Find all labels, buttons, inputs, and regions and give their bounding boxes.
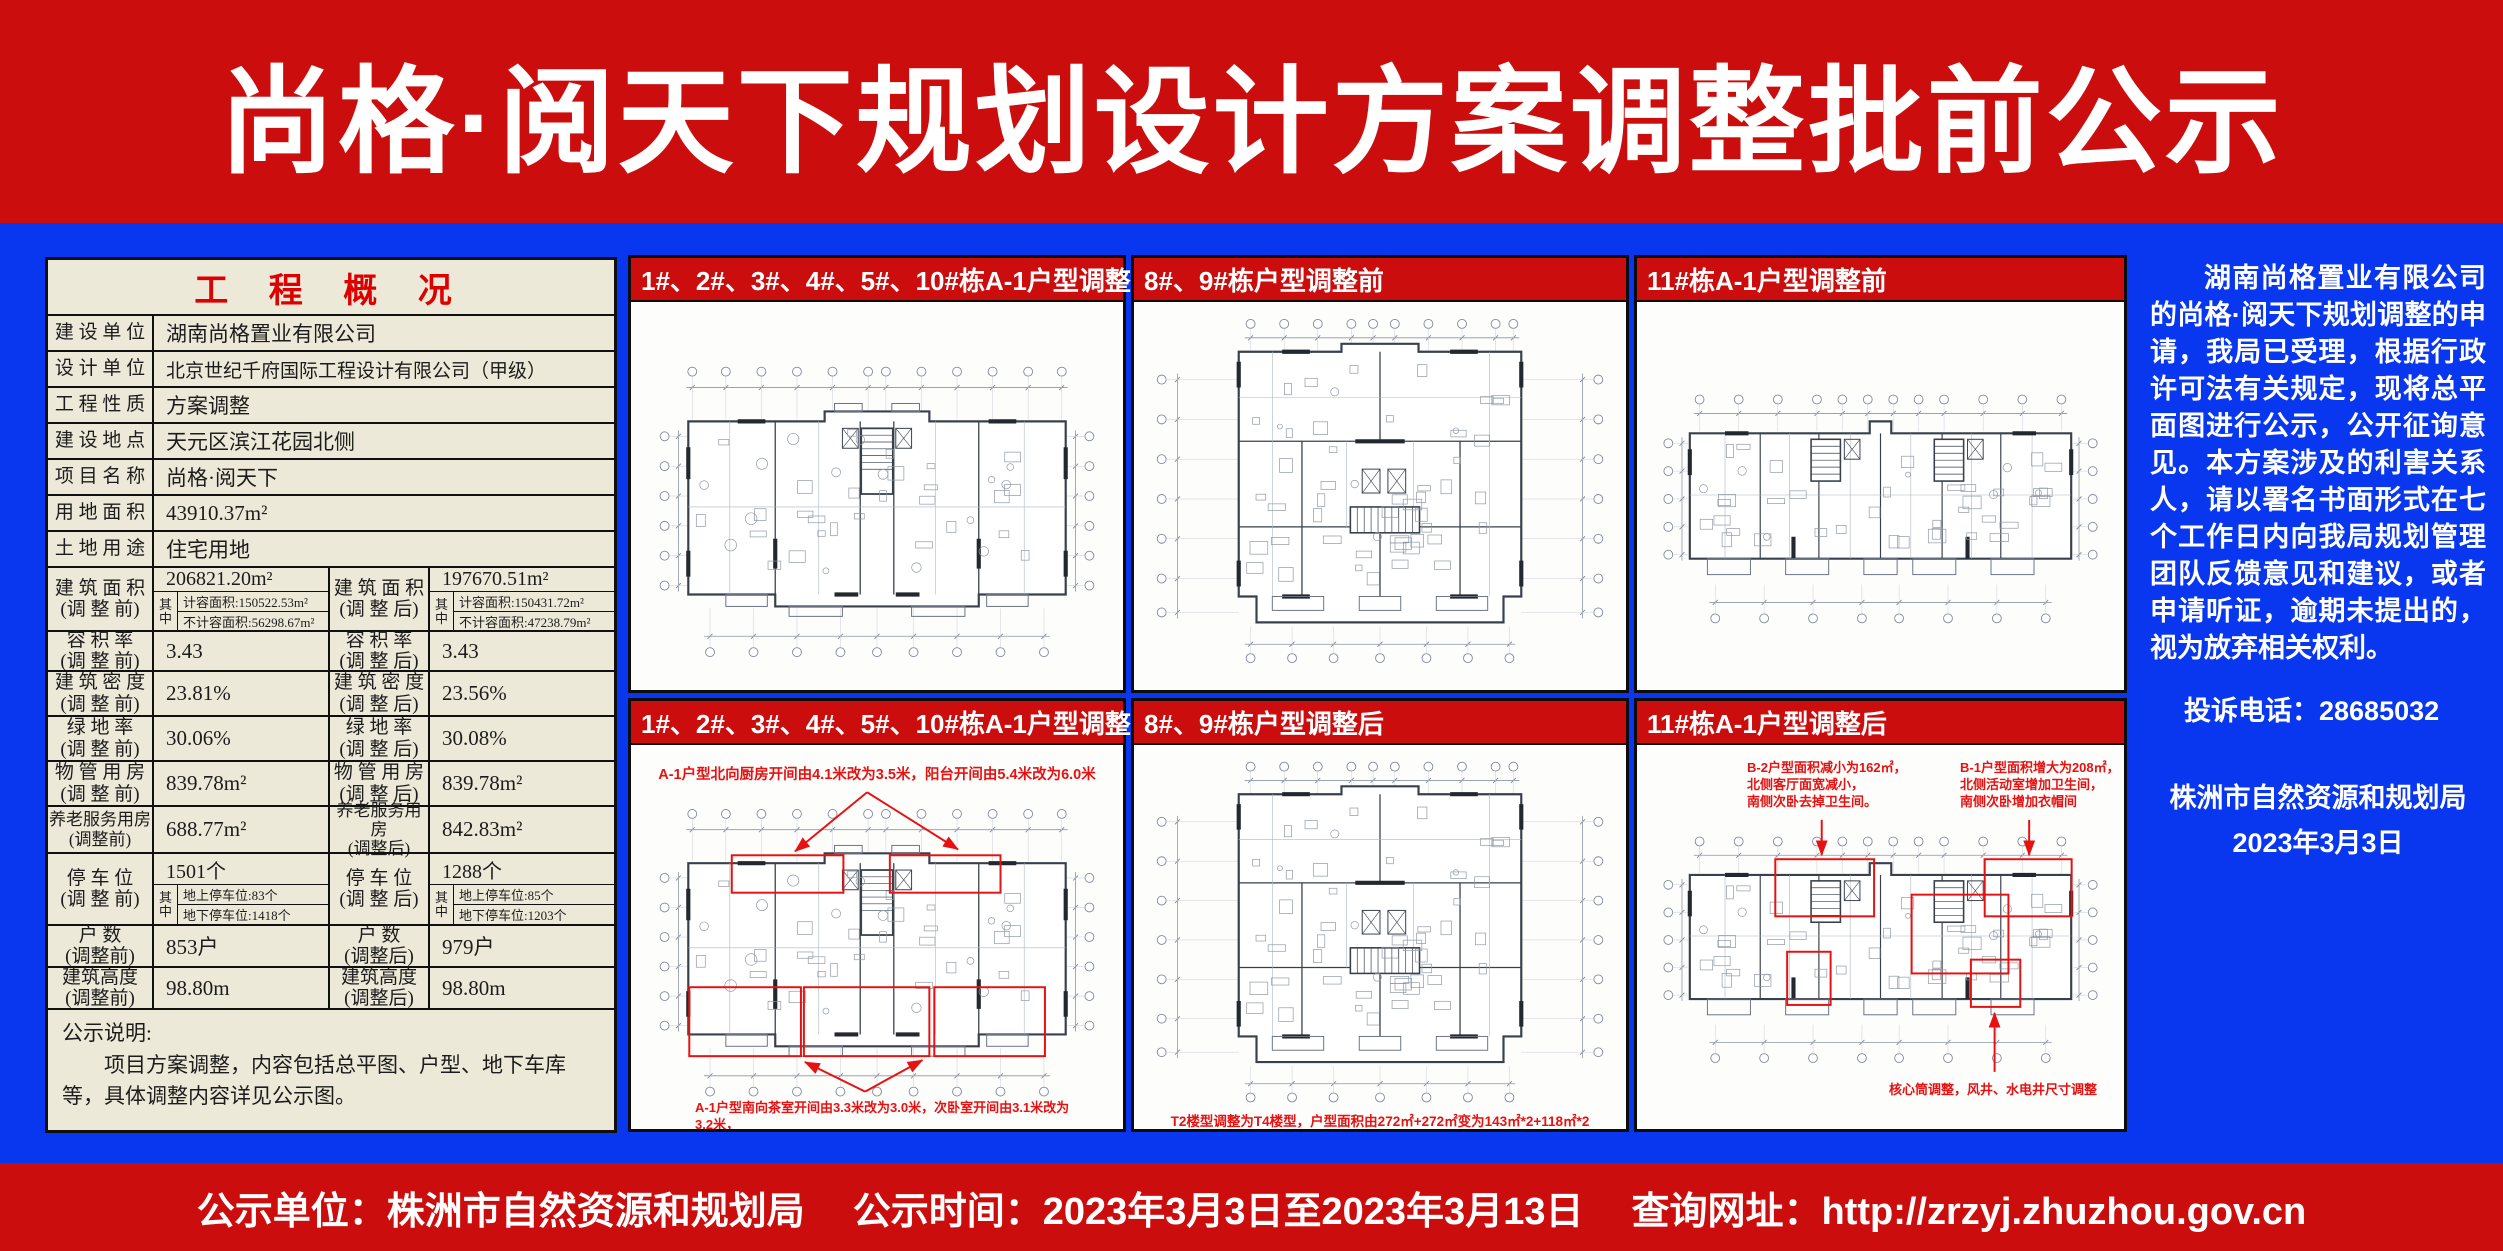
panel-body: T2楼型调整为T4楼型，户型面积由272㎡+272㎡变为143㎡*2+118㎡*… — [1134, 745, 1626, 1129]
area-before-sub1: 计容面积:150522.53m² — [178, 592, 328, 611]
row-label: 建 筑 面 积 (调 整 前) — [48, 568, 154, 630]
panel-body: B-2户型面积减小为162㎡， 北侧客厅面宽减小， 南侧次卧去掉卫生间。 B-1… — [1637, 745, 2124, 1129]
parking-before-cell: 1501个 其 中 地上停车位:83个 地下停车位:1418个 — [154, 854, 330, 924]
row-label: 建 筑 密 度 (调 整 前) — [48, 672, 154, 715]
row-value: 北京世纪千府国际工程设计有限公司（甲级） — [154, 352, 614, 386]
parking-after-sub2: 地下停车位:1203个 — [454, 904, 614, 924]
panel-header: 11#栋A-1户型调整后 — [1637, 701, 2124, 745]
table-row: 建 设 单 位 湖南尚格置业有限公司 — [48, 314, 614, 350]
row-label: 建筑高度 (调整前) — [48, 968, 154, 1008]
panel-title: 8#、9#栋户型调整后 — [1144, 704, 1384, 741]
plan-panel-b11-before: 11#栋A-1户型调整前 — [1634, 255, 2127, 693]
row-label: 建 筑 密 度 (调 整 后) — [330, 672, 430, 715]
authority-name: 株洲市自然资源和规划局 — [2150, 780, 2486, 817]
qizhong-label: 其 中 — [430, 592, 454, 631]
table-row-parking: 停 车 位 (调 整 前) 1501个 其 中 地上停车位:83个 地下停车位:… — [48, 852, 614, 924]
area-after-value: 197670.51m² — [430, 568, 614, 592]
table-row: 工 程 性 质 方案调整 — [48, 386, 614, 422]
row-label: 物 管 用 房 (调 整 前) — [48, 762, 154, 805]
annotation-note-bottom: A-1户型南向茶室开间由3.3米改为3.0米，次卧室开间由3.1米改为3.2米，… — [695, 1099, 1075, 1129]
row-value: 3.43 — [154, 632, 330, 670]
table-row: 土 地 用 途 住宅用地 — [48, 530, 614, 566]
row-label: 停 车 位 (调 整 前) — [48, 854, 154, 924]
annotation-note-bottom: 核心筒调整，风井、水电井尺寸调整 — [1889, 1081, 2097, 1098]
plan-panel-a1-after: 1#、2#、3#、4#、5#、10#栋A-1户型调整后 — [628, 698, 1126, 1132]
floor-plan — [1637, 302, 2124, 690]
floor-plan — [1134, 302, 1626, 690]
plan-panel-t2-before: 8#、9#栋户型调整前 — [1131, 255, 1629, 693]
row-value: 839.78m² — [154, 762, 330, 805]
panel-body: A-1户型北向厨房开间由4.1米改为3.5米，阳台开间由5.4米改为6.0米 A… — [631, 745, 1123, 1129]
annotation-note-top: A-1户型北向厨房开间由4.1米改为3.5米，阳台开间由5.4米改为6.0米 — [631, 767, 1123, 784]
table-row-plot-ratio: 容 积 率 (调 整 前) 3.43 容 积 率 (调 整 后) 3.43 — [48, 630, 614, 670]
floor-plan — [631, 745, 1123, 1129]
table-row: 设 计 单 位 北京世纪千府国际工程设计有限公司（甲级） — [48, 350, 614, 386]
row-label: 容 积 率 (调 整 前) — [48, 632, 154, 670]
row-value: 98.80m — [430, 968, 614, 1008]
row-label: 建 筑 面 积 (调 整 后) — [330, 568, 430, 630]
page-title: 尚格·阅天下规划设计方案调整批前公示 — [219, 28, 2284, 196]
row-label: 项 目 名 称 — [48, 460, 154, 494]
row-value: 湖南尚格置业有限公司 — [154, 316, 614, 350]
table-row: 建 设 地 点 天元区滨江花园北侧 — [48, 422, 614, 458]
table-row-elderly-room: 养老服务用房 (调整前) 688.77m² 养老服务用房 (调整后) 842.8… — [48, 805, 614, 852]
panel-body — [631, 302, 1123, 690]
panel-title: 1#、2#、3#、4#、5#、10#栋A-1户型调整后 — [641, 704, 1157, 741]
panel-title: 11#栋A-1户型调整后 — [1647, 704, 1887, 741]
row-value: 方案调整 — [154, 388, 614, 422]
table-title: 工 程 概 况 — [48, 260, 614, 314]
header-banner: 尚格·阅天下规划设计方案调整批前公示 — [0, 0, 2503, 223]
row-label: 户 数 (调整前) — [48, 926, 154, 966]
row-value: 43910.37m² — [154, 496, 614, 530]
row-value: 98.80m — [154, 968, 330, 1008]
row-label: 用 地 面 积 — [48, 496, 154, 530]
row-label: 容 积 率 (调 整 后) — [330, 632, 430, 670]
row-label: 建筑高度 (调整后) — [330, 968, 430, 1008]
complaint-phone: 投诉电话：28685032 — [2150, 693, 2486, 730]
footer-time: 公示时间：2023年3月3日至2023年3月13日 — [853, 1180, 1584, 1235]
row-label: 养老服务用房 (调整后) — [330, 807, 430, 852]
panel-header: 1#、2#、3#、4#、5#、10#栋A-1户型调整前 — [631, 258, 1123, 302]
row-value: 842.83m² — [430, 807, 614, 852]
panel-title: 8#、9#栋户型调整前 — [1144, 261, 1384, 298]
table-row: 用 地 面 积 43910.37m² — [48, 494, 614, 530]
row-label: 设 计 单 位 — [48, 352, 154, 386]
panel-body — [1134, 302, 1626, 690]
row-label: 户 数 (调整后) — [330, 926, 430, 966]
row-value: 853户 — [154, 926, 330, 966]
row-label: 土 地 用 途 — [48, 532, 154, 566]
qizhong-label: 其 中 — [154, 885, 178, 924]
project-overview-table: 工 程 概 况 建 设 单 位 湖南尚格置业有限公司 设 计 单 位 北京世纪千… — [45, 257, 617, 1133]
row-value: 天元区滨江花园北侧 — [154, 424, 614, 458]
area-after-cell: 197670.51m² 其 中 计容面积:150431.72m² 不计容面积:4… — [430, 568, 614, 630]
annotation-note-right: B-1户型面积增大为208㎡， 北侧活动室增加卫生间， 南侧次卧增加衣帽间 — [1960, 759, 2124, 810]
row-label: 绿 地 率 (调 整 后) — [330, 717, 430, 760]
footer-banner: 公示单位：株洲市自然资源和规划局 公示时间：2023年3月3日至2023年3月1… — [0, 1163, 2503, 1251]
row-value: 23.81% — [154, 672, 330, 715]
row-label: 绿 地 率 (调 整 前) — [48, 717, 154, 760]
note-title: 公示说明: — [62, 1018, 600, 1050]
notice-date: 2023年3月3日 — [2150, 825, 2486, 862]
row-value: 尚格·阅天下 — [154, 460, 614, 494]
parking-before-value: 1501个 — [154, 854, 328, 885]
notice-column: 湖南尚格置业有限公司的尚格·阅天下规划调整的申请，我局已受理，根据行政许可法有关… — [2150, 260, 2486, 862]
area-before-sub2: 不计容面积:56298.67m² — [178, 611, 328, 631]
panel-title: 11#栋A-1户型调整前 — [1647, 261, 1887, 298]
row-value: 住宅用地 — [154, 532, 614, 566]
qizhong-label: 其 中 — [430, 885, 454, 924]
footer-unit: 公示单位：株洲市自然资源和规划局 — [197, 1180, 805, 1235]
table-row-households: 户 数 (调整前) 853户 户 数 (调整后) 979户 — [48, 924, 614, 966]
note-body: 项目方案调整，内容包括总平图、户型、地下车库等，具体调整内容详见公示图。 — [62, 1050, 600, 1113]
table-row-height: 建筑高度 (调整前) 98.80m 建筑高度 (调整后) 98.80m — [48, 966, 614, 1008]
panel-header: 1#、2#、3#、4#、5#、10#栋A-1户型调整后 — [631, 701, 1123, 745]
annotation-note-bottom: T2楼型调整为T4楼型，户型面积由272㎡+272㎡变为143㎡*2+118㎡*… — [1134, 1113, 1626, 1129]
notice-paragraph: 湖南尚格置业有限公司的尚格·阅天下规划调整的申请，我局已受理，根据行政许可法有关… — [2150, 260, 2486, 667]
plan-panel-t2-after: 8#、9#栋户型调整后 T2楼型调整为T4楼型，户型面积由272㎡+272㎡变为… — [1131, 698, 1629, 1132]
parking-after-value: 1288个 — [430, 854, 614, 885]
row-value: 30.08% — [430, 717, 614, 760]
parking-after-sub1: 地上停车位:85个 — [454, 885, 614, 904]
panel-body — [1637, 302, 2124, 690]
table-note: 公示说明: 项目方案调整，内容包括总平图、户型、地下车库等，具体调整内容详见公示… — [48, 1008, 614, 1130]
row-label: 工 程 性 质 — [48, 388, 154, 422]
row-value: 839.78m² — [430, 762, 614, 805]
panel-title: 1#、2#、3#、4#、5#、10#栋A-1户型调整前 — [641, 261, 1157, 298]
area-after-sub1: 计容面积:150431.72m² — [454, 592, 614, 611]
area-after-sub2: 不计容面积:47238.79m² — [454, 611, 614, 631]
row-value: 30.06% — [154, 717, 330, 760]
table-row-green-ratio: 绿 地 率 (调 整 前) 30.06% 绿 地 率 (调 整 后) 30.08… — [48, 715, 614, 760]
table-row-density: 建 筑 密 度 (调 整 前) 23.81% 建 筑 密 度 (调 整 后) 2… — [48, 670, 614, 715]
plan-panel-b11-after: 11#栋A-1户型调整后 — [1634, 698, 2127, 1132]
panel-header: 8#、9#栋户型调整前 — [1134, 258, 1626, 302]
qizhong-label: 其 中 — [154, 592, 178, 631]
row-value: 688.77m² — [154, 807, 330, 852]
footer-url: 查询网址：http://zrzyj.zhuzhou.gov.cn — [1631, 1180, 2306, 1235]
parking-before-sub2: 地下停车位:1418个 — [178, 904, 328, 924]
row-label: 停 车 位 (调 整 后) — [330, 854, 430, 924]
row-label: 物 管 用 房 (调 整 后) — [330, 762, 430, 805]
plan-panel-a1-before: 1#、2#、3#、4#、5#、10#栋A-1户型调整前 — [628, 255, 1126, 693]
row-value: 23.56% — [430, 672, 614, 715]
floor-plan — [631, 302, 1123, 690]
area-before-cell: 206821.20m² 其 中 计容面积:150522.53m² 不计容面积:5… — [154, 568, 330, 630]
annotation-note-left: B-2户型面积减小为162㎡， 北侧客厅面宽减小， 南侧次卧去掉卫生间。 — [1747, 759, 1917, 810]
row-label: 建 设 地 点 — [48, 424, 154, 458]
row-label: 养老服务用房 (调整前) — [48, 807, 154, 852]
row-value: 3.43 — [430, 632, 614, 670]
parking-before-sub1: 地上停车位:83个 — [178, 885, 328, 904]
notice-board: 尚格·阅天下规划设计方案调整批前公示 工 程 概 况 建 设 单 位 湖南尚格置… — [0, 0, 2503, 1251]
row-label: 建 设 单 位 — [48, 316, 154, 350]
table-row: 项 目 名 称 尚格·阅天下 — [48, 458, 614, 494]
table-row-property-room: 物 管 用 房 (调 整 前) 839.78m² 物 管 用 房 (调 整 后)… — [48, 760, 614, 805]
row-value: 979户 — [430, 926, 614, 966]
panel-header: 8#、9#栋户型调整后 — [1134, 701, 1626, 745]
parking-after-cell: 1288个 其 中 地上停车位:85个 地下停车位:1203个 — [430, 854, 614, 924]
floor-plan — [1134, 745, 1626, 1129]
panel-header: 11#栋A-1户型调整前 — [1637, 258, 2124, 302]
area-before-value: 206821.20m² — [154, 568, 328, 592]
table-row-building-area: 建 筑 面 积 (调 整 前) 206821.20m² 其 中 计容面积:150… — [48, 566, 614, 630]
